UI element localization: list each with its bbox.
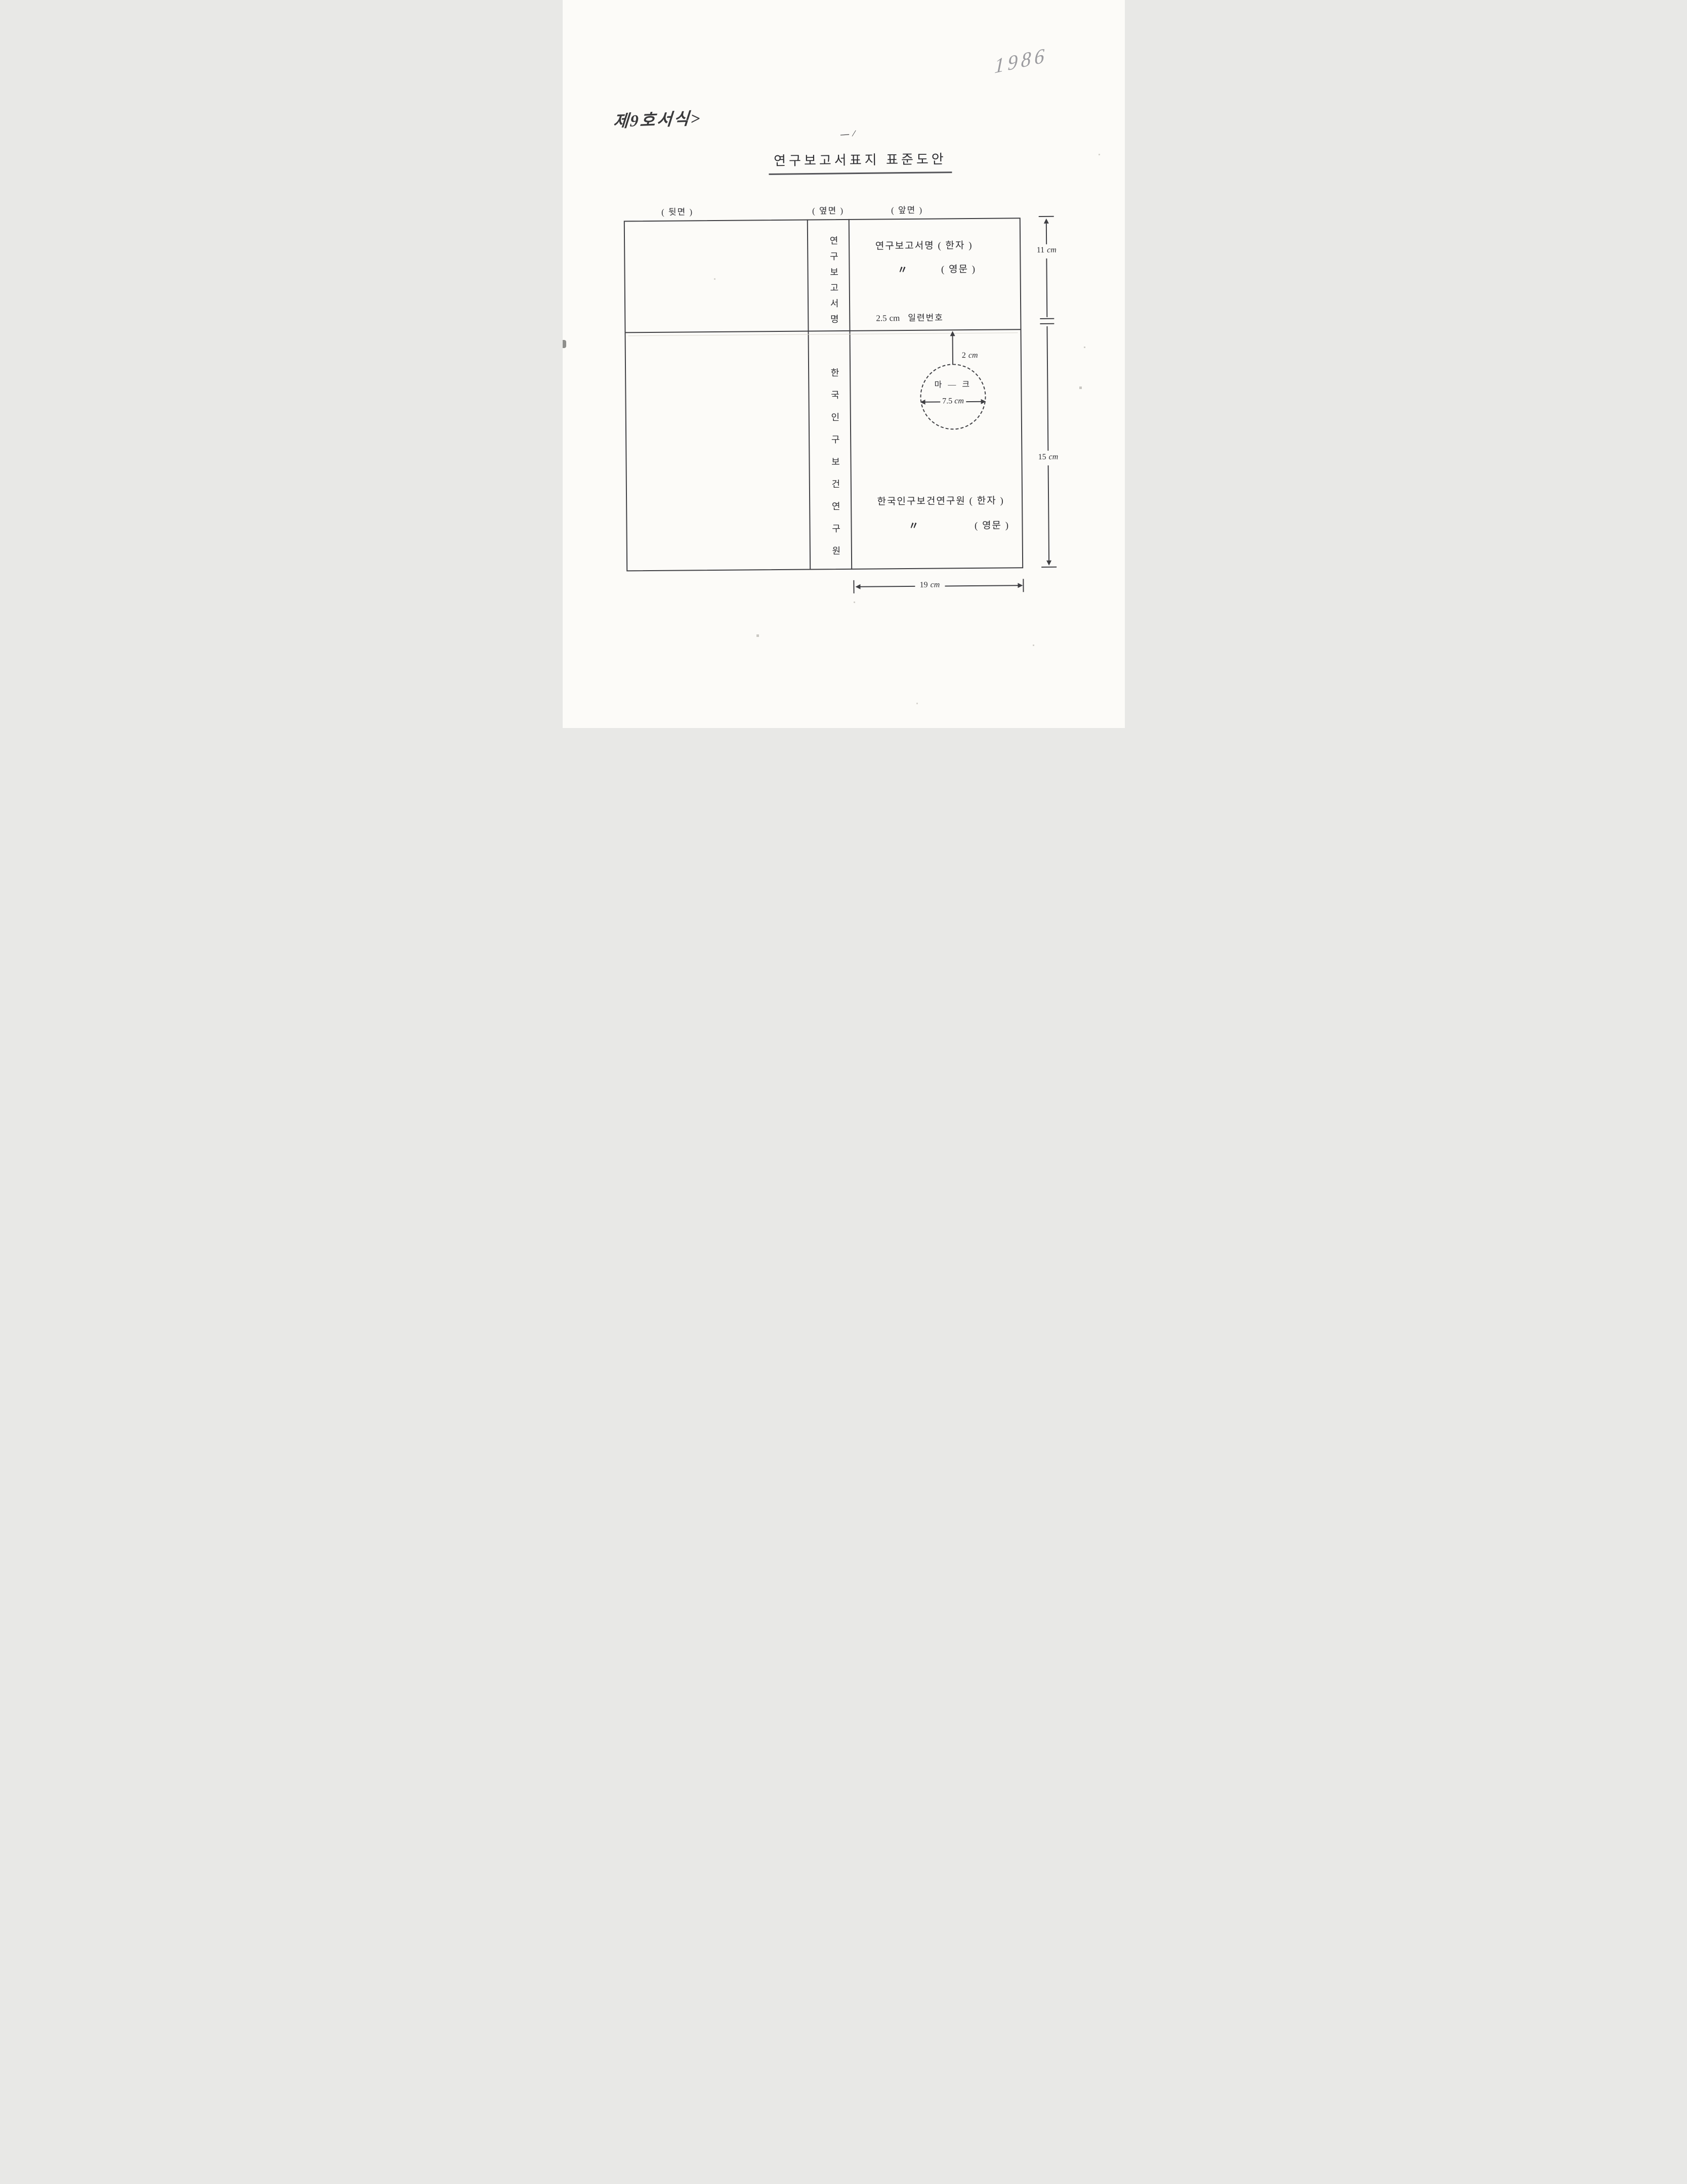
dim-width-right-arrowhead-icon bbox=[1018, 583, 1023, 588]
mark-diameter-left-arrowhead-icon bbox=[920, 400, 925, 405]
dim-break-tick-2 bbox=[1040, 323, 1054, 324]
serial-offset-value: 2.5 bbox=[876, 313, 887, 323]
spine-institute-name-text: 한국인구보건연구원 bbox=[828, 368, 842, 568]
dim-top-arrowhead-icon bbox=[1043, 219, 1048, 224]
dim-bottom-height-value: 15 bbox=[1038, 453, 1046, 461]
mark-diameter-right-arrowhead-icon bbox=[981, 399, 986, 404]
dim-top-height-unit: cm bbox=[1047, 246, 1057, 254]
mark-diameter-unit: cm bbox=[954, 397, 964, 405]
dim-bottom-height-unit: cm bbox=[1048, 453, 1058, 461]
dim-bottom-arrowhead-icon bbox=[1046, 561, 1051, 566]
dim-top-height-value: 11 bbox=[1036, 246, 1044, 254]
front-institute-ditto: 〃 bbox=[908, 518, 918, 532]
dim-top-line-lower bbox=[1046, 259, 1047, 317]
front-report-title-english: ( 영문 ) bbox=[941, 262, 976, 276]
dim-top-line-upper bbox=[1045, 224, 1046, 244]
dim-width-left-tick bbox=[853, 580, 854, 593]
dim-top-height-label: 11cm bbox=[1036, 246, 1056, 255]
mark-offset-dimension: 2cm bbox=[961, 351, 978, 360]
serial-offset-unit: cm bbox=[889, 313, 900, 323]
dim-bottom-line-lower bbox=[1047, 465, 1049, 561]
dim-width-left-arrowhead-icon bbox=[855, 584, 860, 589]
dim-bottom-end-tick bbox=[1041, 567, 1057, 568]
mark-diameter-dimension: 7.5cm bbox=[920, 398, 986, 406]
front-report-title-hanja: 연구보고서명 ( 한자 ) bbox=[875, 238, 973, 252]
cover-layout-diagram: ( 뒷면 ) ( 옆면 ) ( 앞면 ) 연구보고서명 한국인구보건연구원 연구… bbox=[563, 0, 1125, 728]
dim-width-line-right bbox=[945, 585, 1019, 586]
dim-width-right-tick bbox=[1023, 579, 1024, 592]
front-institute-hanja: 한국인구보건연구원 ( 한자 ) bbox=[877, 493, 1004, 508]
mark-offset-arrow-line bbox=[952, 335, 953, 364]
scan-edge-blot bbox=[563, 340, 566, 348]
dim-front-width-label: 19cm bbox=[916, 580, 943, 589]
dim-top-end-tick bbox=[1038, 216, 1053, 217]
scan-specks bbox=[563, 0, 563, 1]
front-institute-english: ( 영문 ) bbox=[974, 518, 1009, 532]
serial-number-note: 2.5cm일련번호 bbox=[876, 310, 944, 323]
institute-mark-label: 마 ― 크 bbox=[934, 377, 972, 390]
dim-bottom-height-label: 15cm bbox=[1038, 453, 1058, 462]
mark-offset-unit: cm bbox=[968, 351, 978, 360]
dim-break-tick-1 bbox=[1040, 318, 1054, 319]
panel-label-front: ( 앞면 ) bbox=[891, 203, 922, 216]
mark-diameter-label: 7.5cm bbox=[940, 397, 966, 406]
mark-diameter-value: 7.5 bbox=[942, 397, 952, 405]
scanned-document-page: 1986 제9호서식> — ∕ 연구보고서표지 표준도안 ( 뒷면 ) ( 옆면… bbox=[563, 0, 1125, 728]
panel-label-spine: ( 옆면 ) bbox=[812, 203, 843, 216]
dim-front-width-value: 19 bbox=[919, 581, 927, 589]
front-report-title-ditto: 〃 bbox=[897, 262, 907, 276]
dim-width-line-left bbox=[860, 586, 915, 587]
serial-label: 일련번호 bbox=[908, 313, 944, 323]
spine-report-title-text: 연구보고서명 bbox=[827, 236, 840, 330]
dim-bottom-line-upper bbox=[1046, 326, 1048, 451]
mark-offset-value: 2 bbox=[961, 351, 965, 360]
panel-label-back: ( 뒷면 ) bbox=[661, 204, 693, 217]
dim-front-width-unit: cm bbox=[930, 581, 940, 589]
